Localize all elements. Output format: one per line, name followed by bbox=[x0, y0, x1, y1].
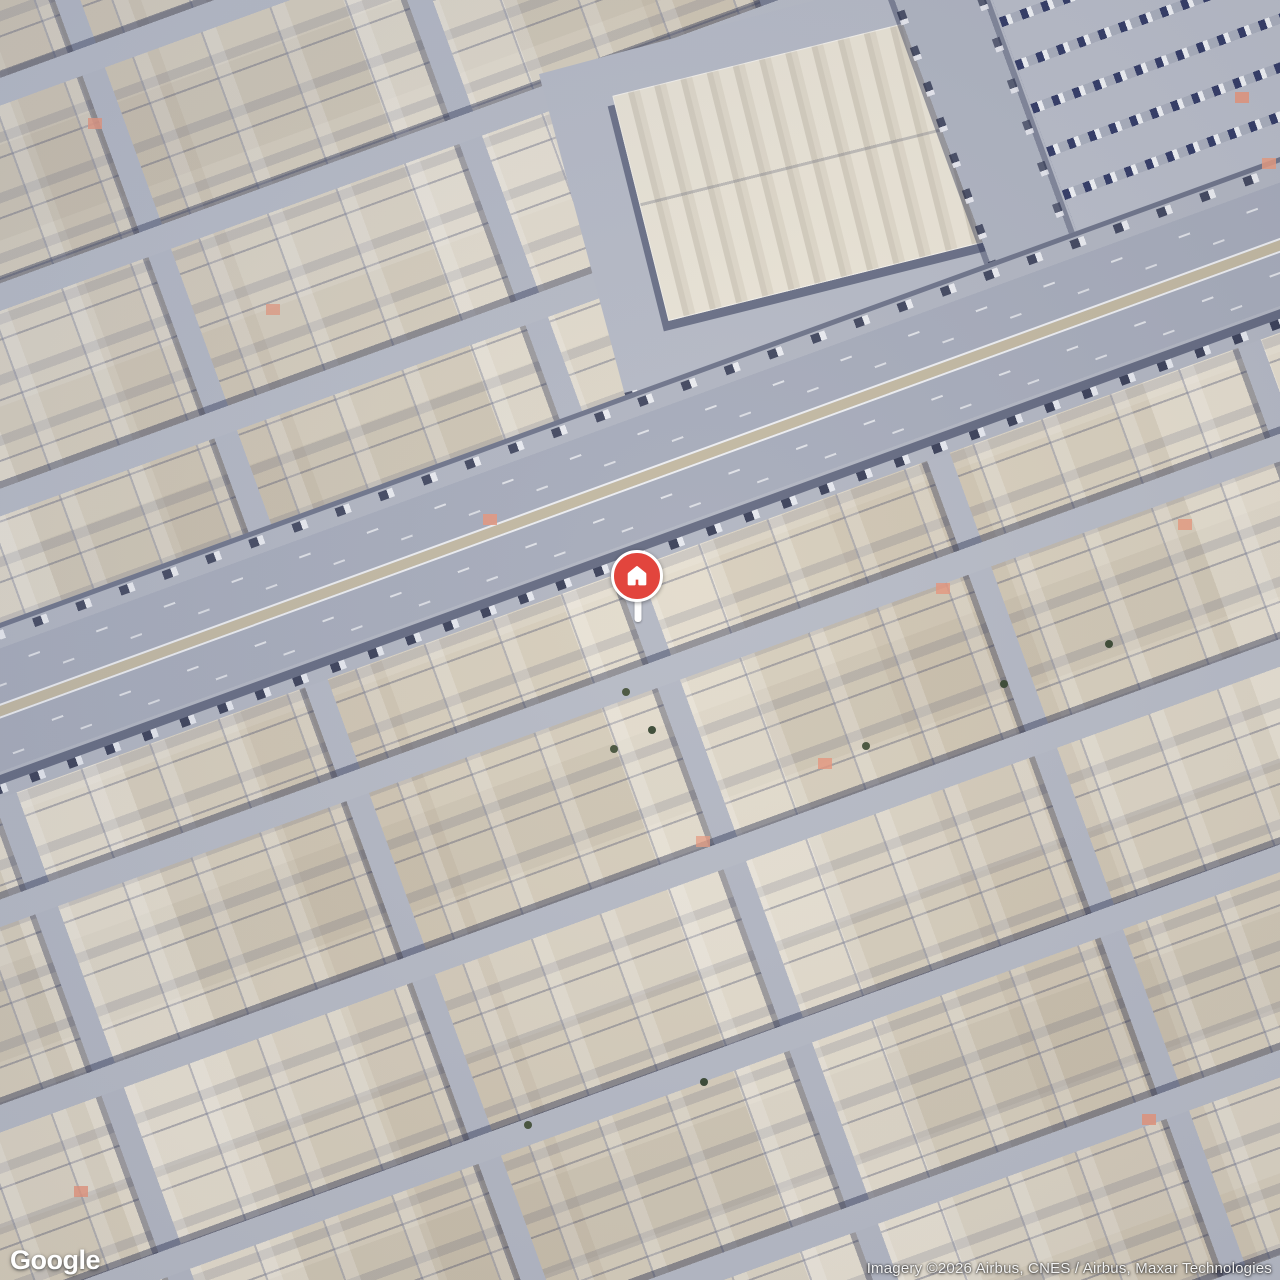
imagery-attribution: Imagery ©2026 Airbus, CNES / Airbus, Max… bbox=[867, 1260, 1272, 1277]
tree-dots bbox=[0, 0, 8, 8]
home-icon bbox=[624, 563, 650, 589]
map-viewport[interactable]: Google Imagery ©2026 Airbus, CNES / Airb… bbox=[0, 0, 1280, 1280]
satellite-imagery-layer bbox=[0, 0, 1280, 1280]
marker-circle bbox=[611, 550, 663, 602]
location-marker[interactable] bbox=[611, 550, 665, 626]
google-logo[interactable]: Google bbox=[10, 1245, 100, 1276]
